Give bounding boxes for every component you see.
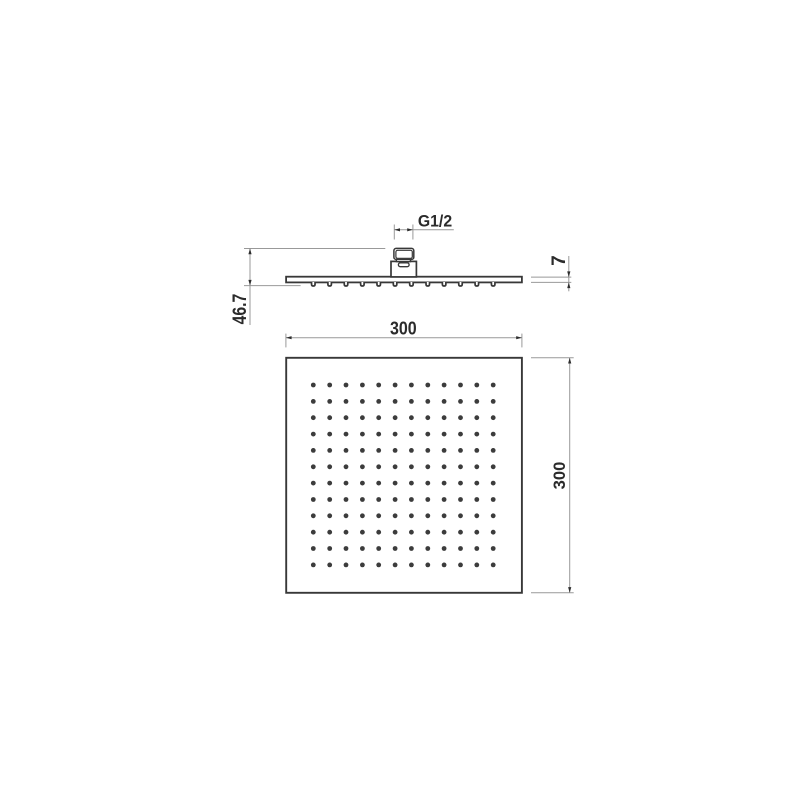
svg-text:300: 300 — [390, 317, 417, 339]
svg-text:300: 300 — [550, 462, 569, 490]
svg-text:46.7: 46.7 — [229, 294, 251, 325]
svg-text:G1/2: G1/2 — [418, 212, 452, 231]
svg-text:7: 7 — [549, 255, 570, 266]
